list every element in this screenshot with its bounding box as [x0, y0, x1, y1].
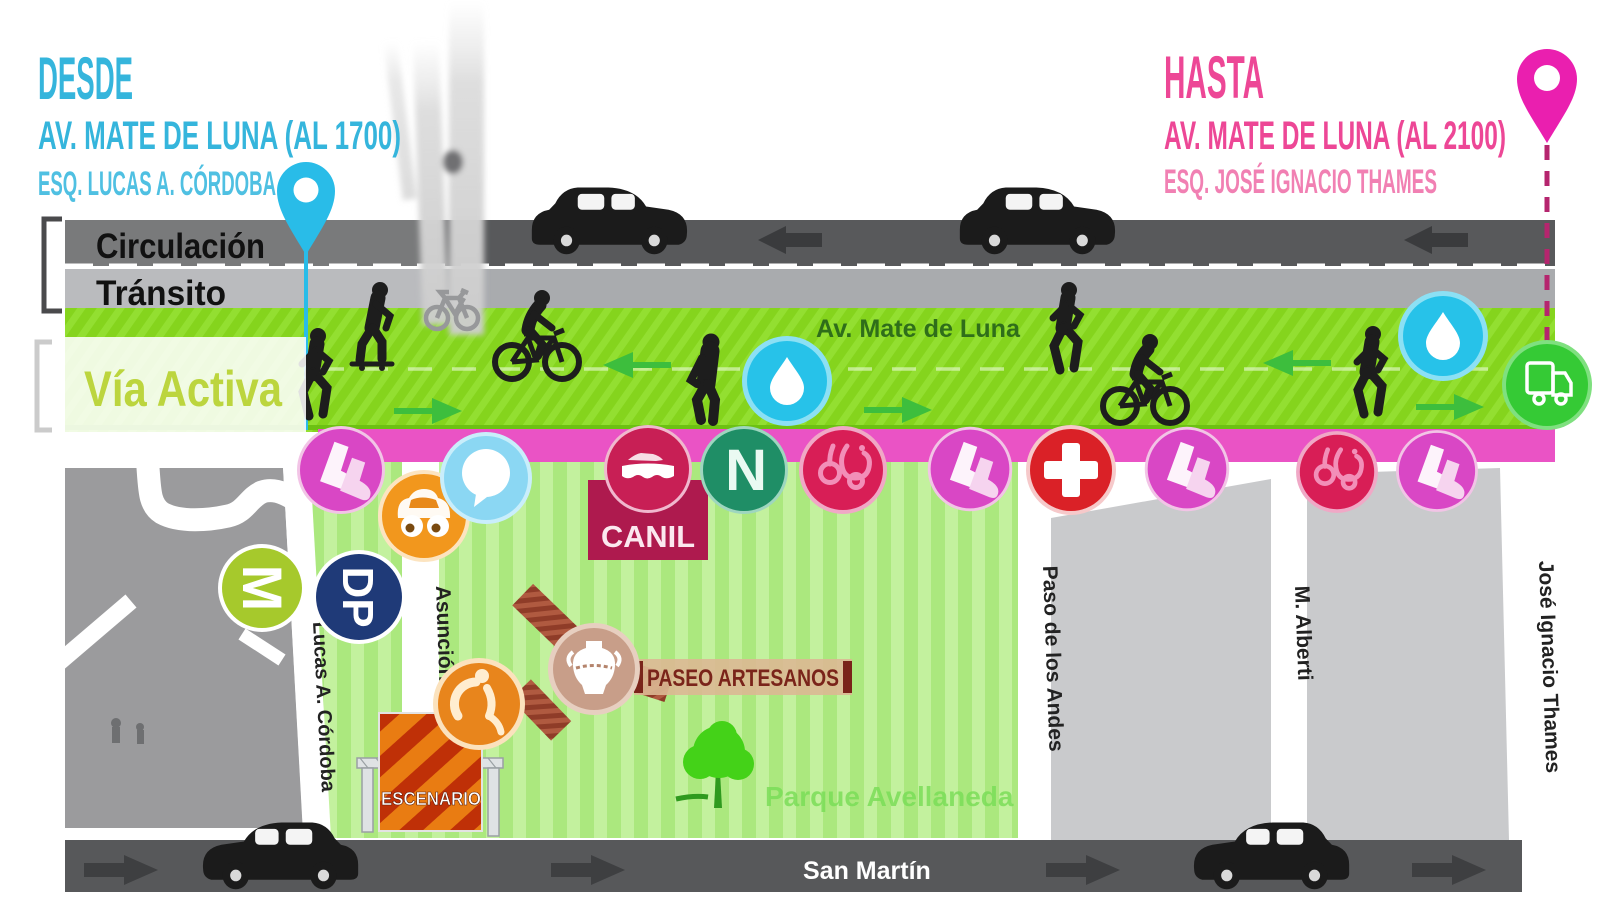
svg-text:Av. Mate de Luna: Av. Mate de Luna — [816, 315, 1021, 343]
svg-text:Circulación: Circulación — [96, 227, 265, 266]
svg-text:DESDE: DESDE — [38, 45, 133, 112]
svg-text:San Martín: San Martín — [803, 857, 931, 885]
svg-text:ESQ. JOSÉ IGNACIO THAMES: ESQ. JOSÉ IGNACIO THAMES — [1164, 163, 1437, 201]
svg-text:N: N — [725, 438, 767, 503]
svg-text:ESQ. LUCAS A. CÓRDOBA: ESQ. LUCAS A. CÓRDOBA — [38, 165, 276, 203]
svg-text:CANIL: CANIL — [601, 519, 695, 554]
svg-text:PASEO ARTESANOS: PASEO ARTESANOS — [647, 665, 839, 692]
svg-text:M: M — [231, 565, 294, 612]
svg-text:Tránsito: Tránsito — [96, 274, 226, 313]
svg-text:AV. MATE DE LUNA (AL 1700): AV. MATE DE LUNA (AL 1700) — [38, 114, 401, 158]
svg-text:HASTA: HASTA — [1164, 44, 1264, 111]
svg-text:AV. MATE DE LUNA (AL 2100): AV. MATE DE LUNA (AL 2100) — [1164, 114, 1506, 158]
svg-text:ESCENARIO: ESCENARIO — [381, 789, 481, 809]
svg-text:M. Alberti: M. Alberti — [1290, 585, 1316, 681]
svg-text:Parque Avellaneda: Parque Avellaneda — [765, 781, 1014, 812]
svg-text:DP: DP — [333, 566, 382, 627]
svg-text:Vía Activa: Vía Activa — [84, 361, 283, 417]
